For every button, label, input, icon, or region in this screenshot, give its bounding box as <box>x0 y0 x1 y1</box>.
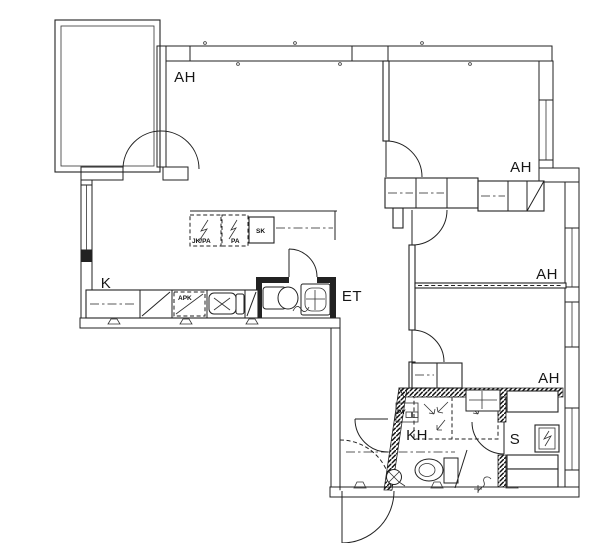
room-label-sauna: S <box>510 431 521 448</box>
living-bedroom1-wall <box>383 61 389 141</box>
label-cleaning-closet: SK <box>256 228 265 235</box>
sauna-bench-low1 <box>507 455 558 469</box>
window-bedroom-top-right <box>539 100 553 160</box>
room-label-entrance: ET <box>342 288 362 305</box>
balcony-wall-left <box>81 167 123 180</box>
label-freezer: PA <box>231 238 240 245</box>
toilet-icon <box>263 287 298 309</box>
window-bedroom-low-right <box>565 302 579 347</box>
top-wall-pier-mid <box>352 46 388 61</box>
washbasin-icon <box>301 284 330 315</box>
left-wall-block <box>81 250 92 262</box>
closet-bedroom-low <box>412 363 462 388</box>
closet-row-b <box>478 181 544 211</box>
kitchen-counter <box>86 290 258 318</box>
room-label-bedroom-low: AH <box>538 370 560 387</box>
sauna-bench-low2 <box>507 469 558 487</box>
room-label-bathroom: KH <box>406 427 428 444</box>
hall-wall-stub <box>393 208 403 228</box>
balcony-wall-right <box>163 167 188 180</box>
sauna-heater-icon <box>535 425 559 452</box>
sauna-bench-top <box>507 391 558 412</box>
window-left <box>81 185 92 250</box>
bathroom-basin-icon <box>466 390 500 411</box>
right-wall-step <box>539 168 579 182</box>
bedroom-divider-wall <box>415 283 566 288</box>
floor-plan-svg: AH AH AH AH K ET KH S JK/PA PA SK APK PY <box>0 0 600 543</box>
label-dishwasher: APK <box>178 295 192 302</box>
bathroom-toilet-icon <box>415 458 458 483</box>
sink-icon <box>209 293 244 314</box>
bottom-exterior-wall <box>330 487 579 497</box>
sauna-wall-lower <box>498 455 506 487</box>
window-sauna-right <box>565 408 579 470</box>
label-fridge-freezer: JK/PA <box>192 238 211 245</box>
window-bedroom-mid-right <box>565 228 579 287</box>
balcony-connector-wall <box>157 46 166 167</box>
room-label-kitchen: K <box>101 275 112 292</box>
closet-row-a <box>385 178 478 208</box>
hall-bedroom-wall-upper <box>409 245 415 330</box>
room-label-bedroom-mid: AH <box>536 266 558 283</box>
room-label-living: AH <box>174 69 196 86</box>
rear-left-wall <box>331 328 340 487</box>
floor-plan: AH AH AH AH K ET KH S JK/PA PA SK APK PY <box>0 0 600 543</box>
label-laundry: PY <box>397 409 406 416</box>
room-label-bedroom-top: AH <box>510 159 532 176</box>
